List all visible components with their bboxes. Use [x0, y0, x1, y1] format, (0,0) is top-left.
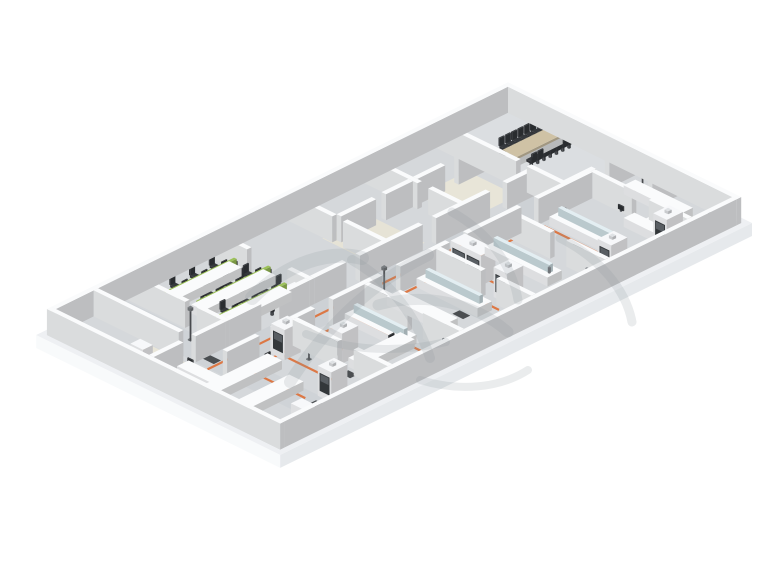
bench-faucet: [548, 266, 551, 274]
floorplan-svg: [0, 0, 760, 570]
isometric-lab-floorplan-render: [0, 0, 760, 570]
